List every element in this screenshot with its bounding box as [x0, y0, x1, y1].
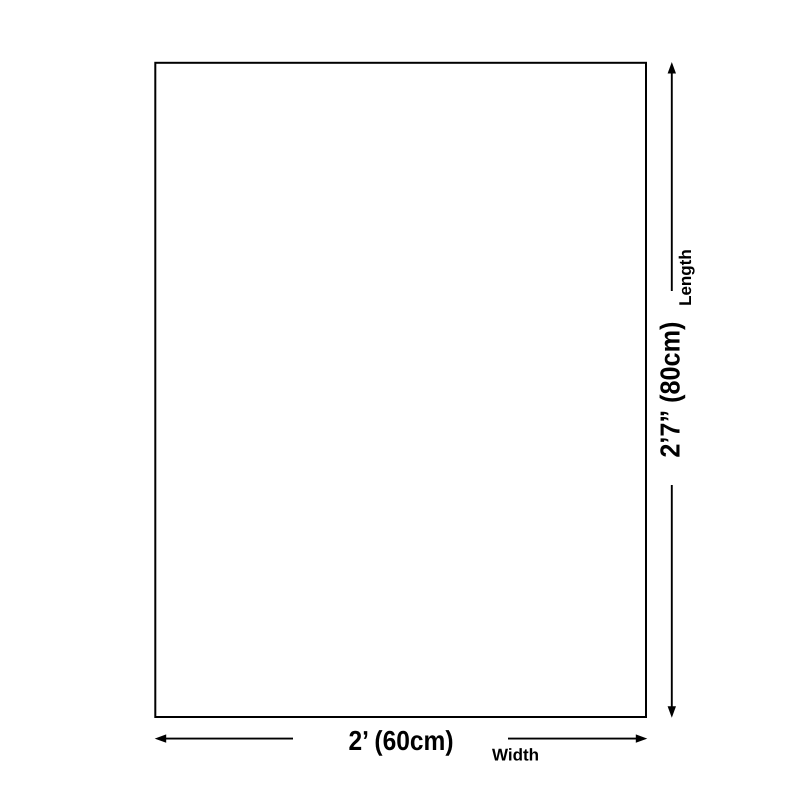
svg-text:2’ (60cm): 2’ (60cm) — [349, 725, 454, 756]
svg-text:Length: Length — [676, 249, 695, 306]
svg-text:Width: Width — [492, 746, 539, 765]
svg-text:2’7” (80cm): 2’7” (80cm) — [654, 322, 685, 458]
